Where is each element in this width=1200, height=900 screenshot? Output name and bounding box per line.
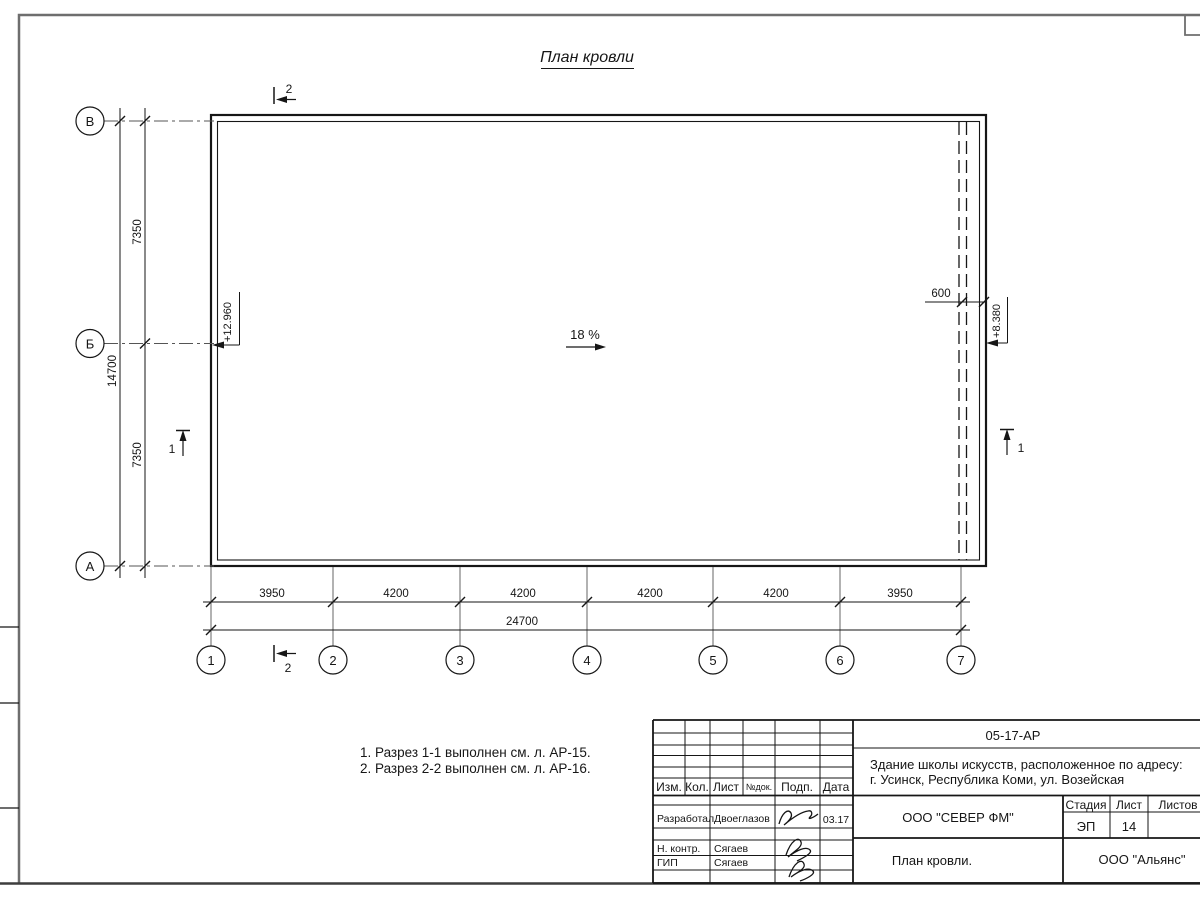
dim-label: 3950 [259, 588, 285, 600]
sheets-label: Листов [1159, 798, 1198, 812]
col-axis-label: 5 [709, 653, 716, 668]
section-number: 2 [285, 661, 292, 675]
object-description-line1: Здание школы искусств, расположенное по … [870, 757, 1183, 772]
plan-title-text: План кровли [540, 49, 634, 66]
staff-date: 03.17 [823, 814, 849, 826]
section-mark-1-right: 1 [1000, 429, 1025, 455]
elevation-marks: +12.960 +8.380 [212, 292, 1008, 349]
tb-col-header: Кол. [685, 780, 709, 794]
section-mark-2-bottom: 2 [274, 645, 296, 675]
stage-value: ЭП [1077, 819, 1096, 834]
tb-col-header: Лист [713, 780, 740, 794]
grid-axis-lines [104, 121, 961, 646]
col-axis-label: 4 [583, 653, 590, 668]
dim-label: 4200 [763, 588, 789, 600]
row-axis-label: Б [86, 337, 95, 352]
notes: 1. Разрез 1-1 выполнен см. л. АР-15. 2. … [360, 745, 591, 776]
dimensions-bottom: 3950 4200 4200 4200 4200 3950 24700 [203, 588, 970, 635]
note-line: 2. Разрез 2-2 выполнен см. л. АР-16. [360, 761, 591, 776]
client-company: ООО "Альянс" [1099, 852, 1186, 867]
staff-name: Сягаев [714, 857, 749, 869]
doc-number: 05-17-АР [986, 728, 1041, 743]
title-block: 05-17-АР Здание школы искусств, располож… [653, 720, 1200, 883]
elevation-value: +8.380 [991, 304, 1003, 338]
signature [779, 811, 818, 825]
row-axis-label: А [86, 559, 95, 574]
column-axis-lines [211, 567, 961, 646]
section-number: 1 [169, 442, 176, 456]
frame-corner-box [1185, 15, 1200, 35]
object-description-line2: г. Усинск, Республика Коми, ул. Возейска… [870, 772, 1124, 787]
tb-col-header: №док. [746, 782, 772, 792]
staff-name: Двоеглазов [714, 813, 770, 825]
dim-label: 600 [931, 288, 950, 300]
staff-role: ГИП [657, 857, 678, 869]
elevation-arrow [986, 340, 998, 347]
staff-role: Н. контр. [657, 843, 700, 855]
elevation-left: +12.960 [212, 292, 240, 349]
tb-col-header: Изм. [656, 780, 682, 794]
slope-annotation: 18 % [566, 327, 606, 351]
sheet-label: Лист [1116, 798, 1143, 812]
staff-role: Разработал [657, 813, 714, 825]
roof-plan-drawing: План кровли В [0, 0, 1200, 900]
slope-label: 18 % [570, 327, 600, 342]
slope-arrow-head [595, 344, 606, 351]
section-marks: 2 2 1 1 [169, 82, 1025, 675]
dim-total-label: 14700 [107, 355, 119, 387]
dim-label: 4200 [510, 588, 536, 600]
tb-col-header: Дата [823, 780, 850, 794]
frame-margin-ticks [0, 627, 19, 808]
section-number: 1 [1018, 441, 1025, 455]
bottom-dim-ticks [206, 597, 966, 635]
col-axis-label: 2 [329, 653, 336, 668]
dim-label: 7350 [132, 442, 144, 468]
section-number: 2 [286, 82, 293, 96]
row-axis-label: В [86, 114, 95, 129]
dim-label: 4200 [383, 588, 409, 600]
col-axis-label: 7 [957, 653, 964, 668]
plan-title: План кровли [540, 49, 634, 69]
elevation-right: +8.380 [986, 297, 1008, 347]
elevation-value: +12.960 [222, 302, 234, 342]
note-line: 1. Разрез 1-1 выполнен см. л. АР-15. [360, 745, 591, 760]
dim-total-label: 24700 [506, 616, 538, 628]
section-mark-2-top: 2 [274, 82, 296, 104]
stage-label: Стадия [1066, 798, 1107, 812]
col-axis-label: 1 [207, 653, 214, 668]
drawing-sheet: План кровли В [0, 0, 1200, 900]
signature [786, 839, 811, 861]
designer-company: ООО "СЕВЕР ФМ" [902, 810, 1014, 825]
staff-name: Сягаев [714, 843, 749, 855]
dim-label: 4200 [637, 588, 663, 600]
col-axis-label: 6 [836, 653, 843, 668]
drawing-name: План кровли. [892, 853, 972, 868]
dim-label: 3950 [887, 588, 913, 600]
col-axis-label: 3 [456, 653, 463, 668]
section-mark-1-left: 1 [169, 430, 190, 456]
sheet-value: 14 [1122, 819, 1136, 834]
tb-col-header: Подп. [781, 780, 813, 794]
dim-label: 7350 [132, 219, 144, 245]
signature [789, 861, 814, 881]
bottom-dim-lines [203, 602, 970, 630]
